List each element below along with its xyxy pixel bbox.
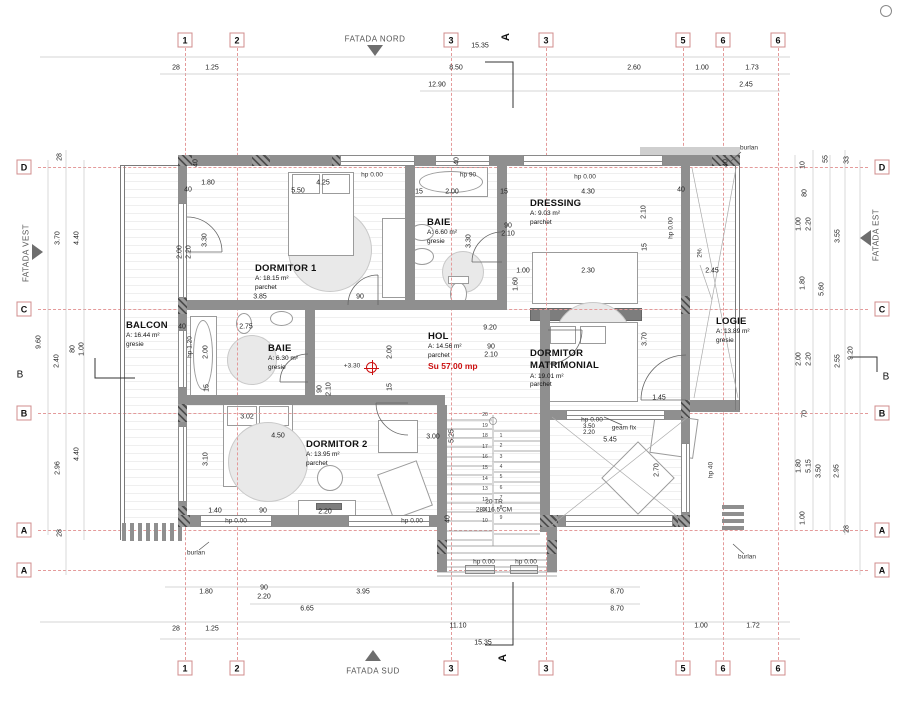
dimension-label: 2.00 bbox=[796, 352, 803, 366]
dimension-label: 2.10 bbox=[326, 382, 333, 396]
grid-axis-line bbox=[778, 48, 779, 660]
grid-bubble: A bbox=[875, 563, 890, 578]
grid-bubble: C bbox=[875, 302, 890, 317]
room-area: A: 13.89 m² bbox=[716, 328, 771, 336]
stair-tread-number: 13 bbox=[482, 486, 488, 492]
dimension-label: 90 bbox=[317, 385, 324, 393]
furniture bbox=[382, 218, 406, 298]
furniture bbox=[550, 326, 576, 344]
dimension-label: 15.35 bbox=[474, 640, 492, 647]
dimension-label: 6.65 bbox=[300, 606, 314, 613]
wall-segment bbox=[120, 165, 178, 166]
dimension-label: 5.45 bbox=[603, 437, 617, 444]
wall-segment bbox=[405, 166, 415, 300]
dimension-label: 28 bbox=[57, 529, 64, 537]
floor-plan: DORMITOR 1 A: 18.15 m² parchet BAIE A: 6… bbox=[0, 0, 897, 720]
dimension-label: 4.50 bbox=[271, 433, 285, 440]
dimension-label: 55 bbox=[823, 155, 830, 163]
stair-tread-number: 1 bbox=[500, 433, 503, 439]
dimension-label: 5.25 bbox=[449, 429, 456, 443]
dimension-label: 1.00 bbox=[796, 217, 803, 231]
dimension-label: 5.50 bbox=[291, 188, 305, 195]
window bbox=[523, 155, 663, 166]
grid-bubble: 3 bbox=[539, 33, 554, 48]
grid-bubble: B bbox=[875, 406, 890, 421]
dimension-label: 3.30 bbox=[202, 233, 209, 247]
dimension-label: 3.95 bbox=[356, 589, 370, 596]
annotation-note: geam fix bbox=[612, 425, 637, 432]
room-finish: parchet bbox=[255, 284, 345, 292]
dimension-label: 80 bbox=[70, 345, 77, 353]
grid-bubble: D bbox=[875, 160, 890, 175]
dimension-label: 40 bbox=[454, 157, 461, 165]
annotation-note: 2% bbox=[697, 248, 704, 257]
dimension-label: 15 bbox=[387, 383, 394, 391]
grid-bubble: 3 bbox=[539, 661, 554, 676]
stair-tread-number: 18 bbox=[482, 433, 488, 439]
room-finish: gresie bbox=[427, 238, 487, 246]
window-glass-line bbox=[466, 570, 494, 571]
dimension-label: 1.80 bbox=[800, 276, 807, 290]
wall-column bbox=[547, 540, 557, 554]
wall-segment bbox=[690, 400, 740, 412]
dimension-label: 40 bbox=[677, 187, 685, 194]
room-name: BAIE bbox=[268, 343, 328, 355]
grid-bubble: 6 bbox=[716, 33, 731, 48]
window-glass-line bbox=[566, 521, 672, 522]
facade-north-label: FATADA NORD bbox=[345, 35, 406, 44]
dimension-label: 3.00 bbox=[426, 434, 440, 441]
wall-segment bbox=[640, 147, 740, 155]
room-name: BAIE bbox=[427, 217, 487, 229]
annotation-note: +3.30 bbox=[344, 363, 360, 370]
annotation-note: hp 0.00 bbox=[225, 518, 247, 525]
stair-tread-number: 8 bbox=[500, 505, 503, 511]
window-glass-line bbox=[686, 444, 687, 512]
dimension-label: 28 bbox=[844, 525, 851, 533]
dimension-label: 4.25 bbox=[316, 180, 330, 187]
facade-north-arrow-icon bbox=[367, 45, 383, 56]
wall-segment bbox=[162, 523, 166, 541]
wall-segment bbox=[722, 526, 744, 530]
stair-tread-number: 2 bbox=[500, 443, 503, 449]
dimension-label: 90 bbox=[356, 294, 364, 301]
grid-axis-line bbox=[723, 48, 724, 660]
dimension-label: 3.55 bbox=[835, 229, 842, 243]
wall-segment bbox=[124, 165, 125, 540]
wall-column bbox=[681, 400, 690, 418]
window bbox=[435, 155, 490, 166]
furniture bbox=[270, 311, 293, 326]
dimension-label: 1.45 bbox=[652, 395, 666, 402]
stair-tread-number: 15 bbox=[482, 465, 488, 471]
annotation-note: hp 0.00 bbox=[581, 417, 603, 424]
dimension-label: 2.20 bbox=[806, 352, 813, 366]
wall-column bbox=[178, 296, 187, 314]
dimension-label: 3.30 bbox=[466, 234, 473, 248]
dimension-label: 1.80 bbox=[199, 589, 213, 596]
stair-tread-number: 6 bbox=[500, 485, 503, 491]
dimension-label: 40 bbox=[445, 515, 452, 523]
dimension-label: 9.20 bbox=[483, 325, 497, 332]
grid-bubble: 3 bbox=[444, 33, 459, 48]
window bbox=[681, 443, 690, 513]
dimension-label: 2.20 bbox=[186, 245, 193, 259]
window bbox=[340, 155, 415, 166]
floor-logia bbox=[690, 166, 735, 400]
wall-segment bbox=[722, 519, 744, 523]
window-glass-line bbox=[341, 161, 414, 162]
dimension-label: 1.73 bbox=[745, 65, 759, 72]
grid-bubble: D bbox=[17, 160, 32, 175]
facade-south-label: FATADA SUD bbox=[346, 667, 400, 676]
room-finish: gresie bbox=[268, 364, 328, 372]
grid-axis-line bbox=[38, 167, 868, 168]
dimension-label: 1.72 bbox=[746, 623, 760, 630]
grid-bubble: B bbox=[17, 406, 32, 421]
dimension-label: 10 bbox=[800, 161, 807, 169]
stair-tread-number: 10 bbox=[482, 518, 488, 524]
wall-segment bbox=[122, 523, 126, 541]
dimension-label: 9.20 bbox=[848, 346, 855, 360]
dimension-label: 2.30 bbox=[581, 268, 595, 275]
annotation-note: 28X16.5 CM bbox=[476, 507, 512, 514]
stair-tread-number: 3 bbox=[500, 454, 503, 460]
section-marker-bottom: A bbox=[497, 654, 509, 662]
wall-segment bbox=[540, 310, 550, 532]
grid-bubble: A bbox=[17, 523, 32, 538]
room-finish: parchet bbox=[306, 460, 396, 468]
wall-column bbox=[178, 515, 190, 527]
room-finish: parchet bbox=[530, 219, 620, 227]
grid-bubble: 6 bbox=[716, 661, 731, 676]
dimension-label: 1.00 bbox=[694, 623, 708, 630]
annotation-note: burlan bbox=[738, 554, 756, 561]
furniture bbox=[532, 252, 638, 304]
room-dormitor-1: DORMITOR 1 A: 18.15 m² parchet bbox=[255, 263, 345, 292]
dimension-label: 2.96 bbox=[55, 461, 62, 475]
room-baie-mid: BAIE A: 6.30 m² gresie bbox=[268, 343, 328, 372]
facade-east-label: FATADA EST bbox=[872, 209, 881, 261]
room-dressing: DRESSING A: 9.03 m² parchet bbox=[530, 198, 620, 227]
wall-column bbox=[178, 155, 192, 166]
dimension-label: 90 bbox=[259, 508, 267, 515]
dimension-label: 1.40 bbox=[208, 508, 222, 515]
wall-segment bbox=[170, 523, 174, 541]
dimension-label: 2.00 bbox=[445, 189, 459, 196]
stair-tread-number: 5 bbox=[500, 474, 503, 480]
stair-tread-number: 11 bbox=[482, 507, 487, 513]
dimension-label: 2.10 bbox=[501, 231, 515, 238]
room-name: HOL bbox=[428, 331, 508, 343]
annotation-note: hp 0.00 bbox=[401, 518, 423, 525]
furniture bbox=[317, 465, 343, 491]
room-area: A: 19.01 m² bbox=[530, 373, 618, 381]
facade-east-arrow-icon bbox=[860, 230, 871, 246]
dimension-label: 2.00 bbox=[177, 245, 184, 259]
dimension-label: 1.80 bbox=[796, 459, 803, 473]
grid-bubble: 1 bbox=[178, 33, 193, 48]
facade-south-arrow-icon bbox=[365, 650, 381, 661]
grid-axis-line bbox=[237, 48, 238, 660]
annotation-note: hp 1.20 bbox=[187, 336, 194, 358]
stair-tread-number: 20 bbox=[482, 412, 488, 418]
wall-segment bbox=[739, 155, 740, 410]
room-finish: gresie bbox=[126, 341, 186, 349]
grid-axis-line bbox=[38, 570, 868, 571]
stair-tread-number: 17 bbox=[482, 444, 488, 450]
dimension-label: 12.90 bbox=[428, 82, 446, 89]
dimension-label: 2.45 bbox=[705, 268, 719, 275]
stair-tread-number: 9 bbox=[500, 515, 503, 521]
grid-bubble: 5 bbox=[676, 33, 691, 48]
dimension-label: 1.00 bbox=[516, 268, 530, 275]
stair-tread-number: 12 bbox=[482, 497, 488, 503]
dimension-label: 1.25 bbox=[205, 626, 219, 633]
wall-segment bbox=[735, 155, 736, 410]
wall-column bbox=[178, 404, 187, 422]
annotation-note: hp 0.00 bbox=[515, 559, 537, 566]
room-name: DORMITOR MATRIMONIAL bbox=[530, 348, 618, 373]
dimension-label: 70 bbox=[802, 410, 809, 418]
dimension-label: 8.70 bbox=[610, 606, 624, 613]
window bbox=[465, 565, 495, 574]
room-finish: parchet bbox=[530, 381, 618, 389]
room-dormitor-2: DORMITOR 2 A: 13.95 m² parchet bbox=[306, 439, 396, 468]
dimension-label: 1.00 bbox=[79, 342, 86, 356]
room-name: DRESSING bbox=[530, 198, 620, 210]
dimension-label: 3.50 bbox=[816, 464, 823, 478]
room-dormitor-matrimonial: DORMITOR MATRIMONIAL A: 19.01 m² parchet bbox=[530, 348, 618, 390]
dimension-label: 90 bbox=[260, 585, 268, 592]
wall-segment bbox=[722, 512, 744, 516]
wall-segment bbox=[186, 395, 445, 405]
window-glass-line bbox=[183, 427, 184, 501]
annotation-note: hp 0.00 bbox=[361, 172, 383, 179]
room-area: A: 6.30 m² bbox=[268, 355, 328, 363]
room-name: LOGIE bbox=[716, 316, 771, 328]
dimension-label: 15 bbox=[204, 384, 211, 392]
dimension-label: 2.45 bbox=[739, 82, 753, 89]
dimension-label: 28 bbox=[172, 626, 180, 633]
level-marker-icon bbox=[366, 362, 377, 373]
facade-west-label: FATADA VEST bbox=[22, 224, 31, 282]
wall-column bbox=[437, 540, 447, 554]
grid-letter: B bbox=[17, 370, 24, 381]
grid-bubble: 6 bbox=[771, 33, 786, 48]
dimension-label: 2.60 bbox=[627, 65, 641, 72]
grid-bubble: 6 bbox=[771, 661, 786, 676]
dimension-label: 90 bbox=[487, 344, 495, 351]
dimension-label: 80 bbox=[802, 189, 809, 197]
grid-bubble: C bbox=[17, 302, 32, 317]
grid-bubble: 1 bbox=[178, 661, 193, 676]
furniture bbox=[580, 326, 606, 344]
facade-west-arrow-icon bbox=[32, 244, 43, 260]
dimension-label: 1.00 bbox=[800, 511, 807, 525]
dimension-label: 28 bbox=[57, 153, 64, 161]
room-area: A: 16.44 m² bbox=[126, 332, 186, 340]
dimension-label: 40 bbox=[723, 159, 730, 167]
dimension-label: 9.60 bbox=[36, 335, 43, 349]
stair-tread-number: 7 bbox=[500, 495, 503, 501]
annotation-note: hp 40 bbox=[708, 462, 715, 478]
dimension-label: 1.80 bbox=[201, 180, 215, 187]
dimension-label: 2.00 bbox=[387, 345, 394, 359]
grid-axis-line bbox=[38, 413, 868, 414]
furniture bbox=[228, 422, 308, 502]
dimension-label: 1.00 bbox=[695, 65, 709, 72]
dimension-label: 4.40 bbox=[74, 447, 81, 461]
window bbox=[510, 565, 538, 574]
annotation-note: hp 0.00 bbox=[574, 174, 596, 181]
room-finish: gresie bbox=[716, 337, 771, 345]
room-area: A: 9.03 m² bbox=[530, 210, 620, 218]
dimension-label: 2.00 bbox=[203, 345, 210, 359]
wall-segment bbox=[120, 165, 121, 540]
grid-bubble: A bbox=[875, 523, 890, 538]
section-marker-top: A bbox=[500, 33, 512, 41]
room-name: DORMITOR 1 bbox=[255, 263, 345, 275]
annotation-note: burlan bbox=[187, 550, 205, 557]
stair-tread-number: 16 bbox=[482, 454, 488, 460]
wall-segment bbox=[138, 523, 142, 541]
grid-bubble: 2 bbox=[230, 33, 245, 48]
dimension-label: 2.40 bbox=[54, 354, 61, 368]
dimension-label: 8.50 bbox=[449, 65, 463, 72]
dimension-label: 1.60 bbox=[513, 277, 520, 291]
dimension-label: 2.75 bbox=[239, 324, 253, 331]
wall-segment bbox=[154, 523, 158, 541]
wall-column bbox=[540, 515, 558, 527]
dimension-label: 11.10 bbox=[450, 623, 467, 630]
dimension-label: 5.60 bbox=[819, 282, 826, 296]
dimension-label: 15 bbox=[415, 189, 423, 196]
wall-column bbox=[678, 515, 690, 527]
dimension-label: 8.70 bbox=[610, 589, 624, 596]
window bbox=[565, 515, 673, 527]
window-glass-line bbox=[511, 570, 537, 571]
dimension-label: 2.20 bbox=[806, 217, 813, 231]
dimension-label: 33 bbox=[844, 156, 851, 164]
dimension-label: 15 bbox=[642, 243, 649, 251]
dimension-label: 90 bbox=[504, 223, 512, 230]
wall-column bbox=[252, 155, 270, 166]
annotation-note: hp 0.00 bbox=[473, 559, 495, 566]
dimension-label: 40 bbox=[184, 187, 192, 194]
room-area: A: 18.15 m² bbox=[255, 275, 345, 283]
sheet-reference-icon bbox=[880, 5, 892, 17]
dimension-label: 28 bbox=[172, 65, 180, 72]
stair-tread-number: 4 bbox=[500, 464, 503, 470]
floor-plan-sheet: DORMITOR 1 A: 18.15 m² parchet BAIE A: 6… bbox=[0, 0, 897, 720]
dimension-label: 4.40 bbox=[74, 231, 81, 245]
annotation-note: burlan bbox=[740, 145, 758, 152]
dimension-label: 3.70 bbox=[642, 332, 649, 346]
dimension-label: 2.95 bbox=[834, 464, 841, 478]
wall-segment bbox=[130, 523, 134, 541]
dimension-label: 1.25 bbox=[205, 65, 219, 72]
grid-bubble: 2 bbox=[230, 661, 245, 676]
dimension-label: 2.20 bbox=[257, 594, 271, 601]
window-glass-line bbox=[524, 161, 662, 162]
stair-tread-number: 14 bbox=[482, 476, 488, 482]
dimension-label: 40 bbox=[193, 159, 200, 167]
room-logie: LOGIE A: 13.89 m² gresie bbox=[716, 316, 771, 345]
wall-segment bbox=[722, 505, 744, 509]
room-area: A: 13.95 m² bbox=[306, 451, 396, 459]
dimension-label: 4.30 bbox=[581, 189, 595, 196]
grid-bubble: A bbox=[17, 563, 32, 578]
wall-segment bbox=[550, 410, 566, 420]
annotation-note: hp 0.00 bbox=[668, 217, 675, 239]
dimension-label: 2.70 bbox=[654, 463, 661, 477]
room-usable-area: Su 57.00 mp bbox=[428, 361, 508, 372]
window-glass-line bbox=[436, 161, 489, 162]
grid-bubble: 5 bbox=[676, 661, 691, 676]
stair-tread-number: 19 bbox=[482, 423, 488, 429]
wall-segment bbox=[665, 410, 681, 420]
dimension-label: 3.10 bbox=[203, 452, 210, 466]
dimension-label: 15 bbox=[500, 189, 508, 196]
dimension-label: 2.10 bbox=[484, 352, 498, 359]
room-area: A: 6.60 m² bbox=[427, 229, 487, 237]
wall-column bbox=[681, 296, 690, 314]
dimension-label: 40 bbox=[178, 324, 186, 331]
room-baie-top: BAIE A: 6.60 m² gresie bbox=[427, 217, 487, 246]
grid-letter: B bbox=[883, 372, 890, 383]
dimension-label: 2.10 bbox=[641, 205, 648, 219]
dimension-label: 5.15 bbox=[806, 459, 813, 473]
dimension-label: 3.85 bbox=[253, 294, 267, 301]
dimension-label: 3.70 bbox=[55, 231, 62, 245]
dimension-label: 15.35 bbox=[471, 43, 489, 50]
dimension-label: 2.20 bbox=[583, 430, 595, 436]
dimension-label: 2.20 bbox=[318, 509, 332, 516]
dimension-label: 2.55 bbox=[835, 354, 842, 368]
room-name: DORMITOR 2 bbox=[306, 439, 396, 451]
room-balcon: BALCON A: 16.44 m² gresie bbox=[126, 320, 186, 349]
grid-bubble: 3 bbox=[444, 661, 459, 676]
window bbox=[178, 426, 187, 502]
room-name: BALCON bbox=[126, 320, 186, 332]
wall-segment bbox=[186, 300, 507, 310]
wall-segment bbox=[146, 523, 150, 541]
dimension-label: 3.02 bbox=[240, 414, 254, 421]
annotation-note: hp 90 bbox=[460, 172, 476, 179]
